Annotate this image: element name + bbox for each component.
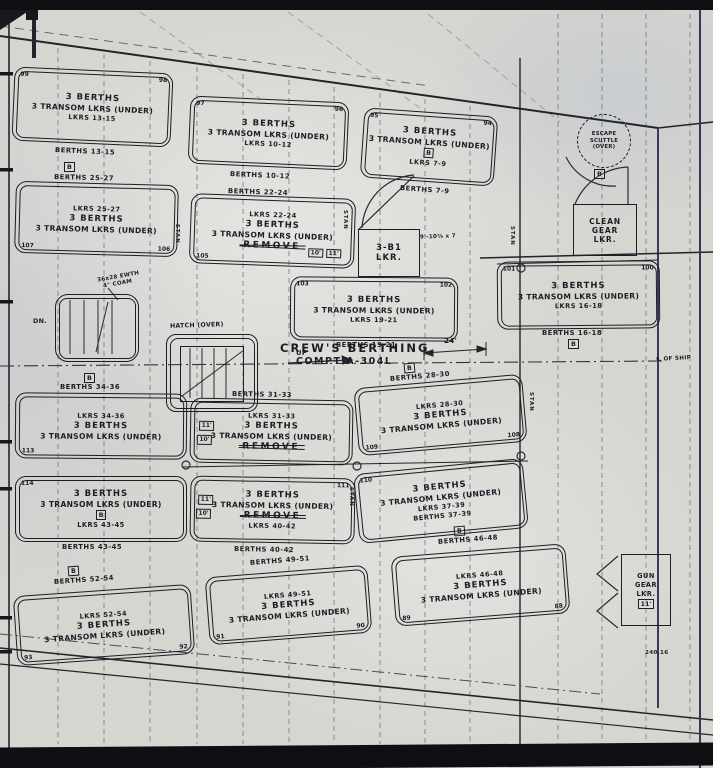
unit-number: 92 <box>179 643 188 651</box>
size-tag: 11' <box>198 495 213 505</box>
unit-number: 105 <box>196 252 209 259</box>
remove-note: REMOVE <box>244 510 302 521</box>
lkrs-range: LKRS 16-18 <box>555 301 603 309</box>
locker-label: LKR. <box>636 590 655 598</box>
locker-label: 3-B1 <box>376 243 402 253</box>
unit-number: 110 <box>359 477 372 485</box>
b-tag: B <box>594 169 605 179</box>
locker-label: GEAR <box>592 226 618 235</box>
transom-lkrs-label: 3 TRANSOM LKRS (UNDER) <box>40 431 161 441</box>
transom-lkrs-label: 3 TRANSOM LKRS (UNDER) <box>35 223 157 235</box>
berth-unit-40-42: 111 3 BERTHS 3 TRANSOM LKRS (UNDER) REMO… <box>189 476 355 545</box>
locker-label: GEAR <box>635 581 657 589</box>
berth-unit-22-24: 105 LKRS 22-24 3 BERTHS 3 TRANSOM LKRS (… <box>189 193 356 269</box>
berth-unit-52-54: 93 92 LKRS 52-54 3 BERTHS 3 TRANSOM LKRS… <box>13 584 195 666</box>
unit-number: 93 <box>24 654 33 662</box>
escape-scuttle-label: (OVER) <box>593 144 616 150</box>
berths-count-label: 3 BERTHS <box>74 420 128 430</box>
size-tag: 11' <box>326 248 342 258</box>
b-tag: B <box>64 162 75 172</box>
berth-unit-43-45: 114 3 BERTHS 3 TRANSOM LKRS (UNDER) B LK… <box>15 476 187 542</box>
berths-count-label: 3 BERTHS <box>244 420 299 431</box>
berth-unit-7-9: 95 94 3 BERTHS 3 TRANSOM LKRS (UNDER) B … <box>360 107 499 186</box>
transom-lkrs-label: 3 TRANSOM LKRS (UNDER) <box>211 430 333 441</box>
berths-count-label: 3 BERTHS <box>74 489 128 499</box>
unit-number: 106 <box>158 246 171 253</box>
lkrs-range: LKRS 19-21 <box>350 315 398 323</box>
berths-range: BERTHS 16-18 <box>542 329 602 337</box>
unit-number: 91 <box>216 633 225 641</box>
unit-number: 97 <box>196 100 205 107</box>
stanchion-label: STAN <box>509 226 515 246</box>
lkrs-range: LKRS 34-36 <box>77 411 125 419</box>
locker-3-b1: 3-B1 LKR. <box>358 229 420 277</box>
unit-number: 102 <box>440 282 453 289</box>
compartment-number: COMPT A-304L <box>296 356 392 367</box>
lkrs-range: LKRS 31-33 <box>248 411 296 420</box>
unit-number: 103 <box>296 280 309 287</box>
locker-label: LKR. <box>594 235 617 244</box>
dim-note: 9'-10⅜ x 7 <box>420 233 456 240</box>
berths-count-label: 3 BERTHS <box>347 294 401 304</box>
b-tag: B <box>568 339 579 349</box>
berth-unit-49-51: 91 90 LKRS 49-51 3 BERTHS 3 TRANSOM LKRS… <box>205 565 373 646</box>
ladder <box>180 346 244 402</box>
berths-count-label: 3 BERTHS <box>551 280 605 290</box>
berths-count-label: 3 BERTHS <box>69 213 124 224</box>
unit-number: 98 <box>159 77 168 84</box>
stanchion-label: STAN <box>528 392 534 412</box>
berth-unit-13-15: 99 98 3 BERTHS 3 TRANSOM LKRS (UNDER) LK… <box>11 67 173 148</box>
remove-note: REMOVE <box>243 240 301 252</box>
unit-number: 100 <box>641 264 654 271</box>
berths-range: BERTHS 40-42 <box>234 545 294 554</box>
b-tag: B <box>84 373 95 383</box>
locker-label: LKR. <box>376 253 402 263</box>
unit-number: 88 <box>554 603 563 611</box>
lkrs-range: LKRS 13-15 <box>68 112 116 122</box>
berths-range: BERTHS 34-36 <box>60 383 120 391</box>
berth-unit-10-12: 97 96 3 BERTHS 3 TRANSOM LKRS (UNDER) LK… <box>188 96 350 171</box>
lkrs-range: LKRS 22-24 <box>249 210 297 220</box>
scan-edge-bottom <box>0 743 713 768</box>
unit-number: 96 <box>335 106 344 113</box>
unit-number: 90 <box>356 622 365 630</box>
size-tag: 10' <box>308 248 324 258</box>
unit-number: 113 <box>22 447 35 454</box>
escape-scuttle: ESCAPE SCUTTLE (OVER) <box>577 114 631 168</box>
stanchion-label: STAN <box>174 224 180 244</box>
transom-lkrs-label: 3 TRANSOM LKRS (UNDER) <box>40 500 161 509</box>
dim-24ft: 24' <box>444 336 457 345</box>
berths-count-label: 3 BERTHS <box>245 219 300 231</box>
unit-number: 89 <box>402 615 411 623</box>
frame-note: 240.16 <box>645 650 668 656</box>
transom-lkrs-label: 3 TRANSOM LKRS (UNDER) <box>518 291 639 301</box>
unit-number: 109 <box>365 444 378 452</box>
size-tag: 11' <box>199 421 214 431</box>
size-tag: 11' <box>638 599 655 609</box>
berths-range: BERTHS 43-45 <box>62 543 122 551</box>
escape-hatch <box>55 294 139 362</box>
scan-edge-top <box>0 0 713 10</box>
size-tag: 10' <box>197 435 212 445</box>
size-tag: 10' <box>196 509 211 519</box>
locker-label: CLEAN <box>589 217 621 226</box>
unit-number: 108 <box>507 431 520 439</box>
b-tag: B <box>68 566 80 577</box>
b-tag: B <box>454 526 466 537</box>
transom-lkrs-label: 3 TRANSOM LKRS (UNDER) <box>313 305 434 315</box>
lkrs-range: LKRS 25-27 <box>73 204 121 213</box>
lkrs-range: LKRS 7-9 <box>409 158 447 169</box>
b-tag: B <box>404 363 416 374</box>
stanchion-label: STAN <box>348 487 354 507</box>
lkrs-range: LKRS 43-45 <box>77 521 125 529</box>
transom-lkrs-label: 3 TRANSOM LKRS (UNDER) <box>212 500 334 511</box>
blueprint-canvas: 99 98 3 BERTHS 3 TRANSOM LKRS (UNDER) LK… <box>0 0 713 768</box>
b-tag: B <box>423 148 435 159</box>
down-label: DN. <box>33 317 47 325</box>
unit-number: 101 <box>503 266 516 273</box>
unit-number: 99 <box>20 71 29 78</box>
berth-unit-19-21: 103 102 3 BERTHS 3 TRANSOM LKRS (UNDER) … <box>290 276 459 341</box>
stanchion-label: STAN <box>342 210 348 230</box>
locker-label: GUN <box>637 572 655 580</box>
b-tag: B <box>96 510 107 520</box>
unit-number: 94 <box>483 120 492 128</box>
berth-unit-46-48: 89 88 LKRS 46-48 3 BERTHS 3 TRANSOM LKRS… <box>391 543 571 627</box>
compartment-title: CREW'S BERTHING <box>280 341 429 355</box>
berth-unit-25-27: 107 106 LKRS 25-27 3 BERTHS 3 TRANSOM LK… <box>14 181 179 257</box>
unit-number: 95 <box>370 112 379 120</box>
berth-unit-34-36: 113 LKRS 34-36 3 BERTHS 3 TRANSOM LKRS (… <box>15 392 188 459</box>
berth-unit-16-18: 101 100 3 BERTHS 3 TRANSOM LKRS (UNDER) … <box>497 260 661 329</box>
unit-number: 114 <box>21 480 34 487</box>
lkrs-range: LKRS 40-42 <box>248 522 296 531</box>
gun-gear-locker: GUN GEAR LKR. 11' <box>621 554 671 626</box>
unit-number: 107 <box>21 242 34 249</box>
berths-count-label: 3 BERTHS <box>245 490 300 501</box>
lkrs-range: LKRS 10-12 <box>244 138 292 148</box>
clean-gear-locker: CLEAN GEAR LKR. <box>573 204 637 256</box>
remove-note: REMOVE <box>242 441 300 452</box>
